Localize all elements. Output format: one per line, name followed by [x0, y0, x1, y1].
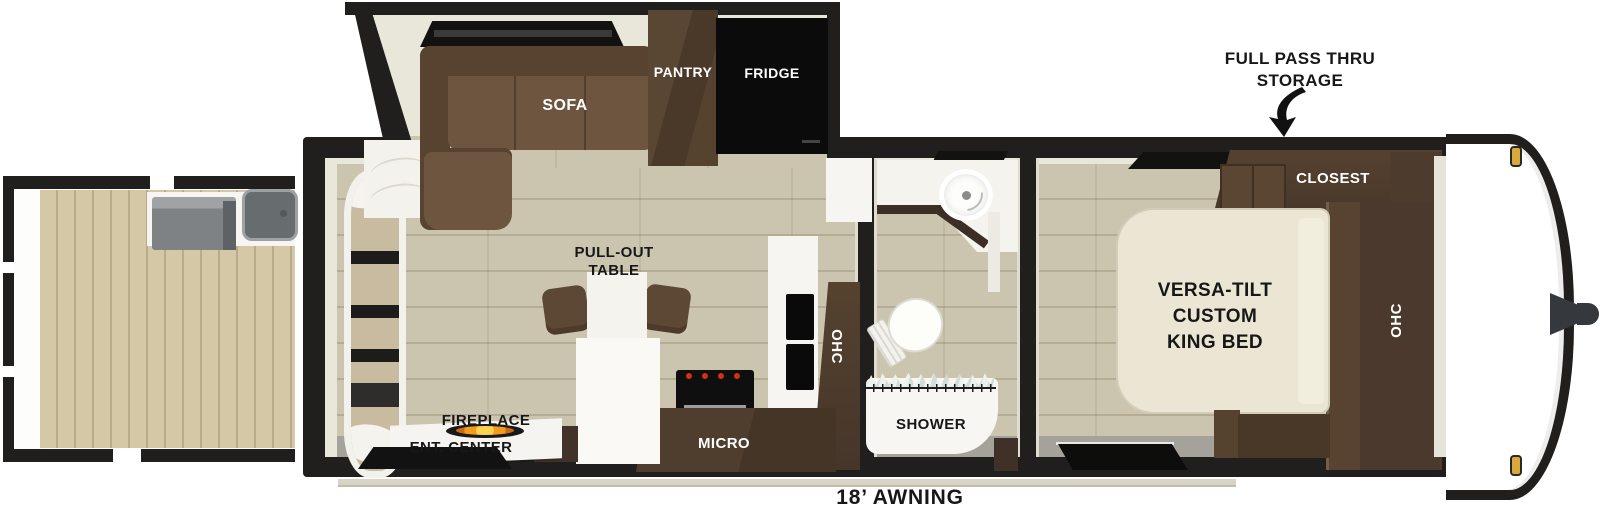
refrigerator [716, 18, 828, 154]
pull-out-table-upper [587, 272, 647, 340]
grill-side-shade [223, 201, 236, 250]
bedroom-ohc-label: OHC [1388, 303, 1405, 338]
bathroom-sink-divider [942, 170, 990, 218]
sofa-back-top [420, 46, 654, 80]
kitchen-sink-basin-1 [786, 294, 814, 340]
vanity-edge-horizontal [877, 205, 941, 214]
storage-arrow-icon [1258, 86, 1322, 138]
shower-rod [864, 387, 996, 389]
pull-out-table-lower [576, 338, 660, 464]
marker-light-top [1512, 148, 1520, 165]
bed-label-line3: KING BED [1100, 333, 1330, 352]
awning-label: 18’ AWNING [770, 487, 1030, 508]
slideout-window [420, 21, 624, 47]
deck-railing-gap-top [150, 176, 174, 189]
rear-door-bar-1 [351, 251, 399, 264]
shower-label: SHOWER [861, 417, 1001, 432]
sofa-chaise [424, 148, 512, 230]
kitchen-ohc-label-box: OHC [818, 306, 854, 386]
rear-door-bar-3 [351, 349, 399, 362]
slideout-frame-right [827, 2, 840, 158]
range-knob-4 [734, 373, 740, 379]
outdoor-sink [242, 189, 298, 241]
range-knob-2 [702, 373, 708, 379]
range-knob-3 [718, 373, 724, 379]
marker-light-bottom [1512, 457, 1520, 474]
hitch-bar [1577, 303, 1599, 325]
bed-label-line1: VERSA-TILT [1100, 281, 1330, 300]
kitchen-sink-basin-2 [786, 344, 814, 390]
bedroom-ohc-label-box: OHC [1376, 282, 1416, 358]
foot-cabinet-long [1238, 414, 1330, 458]
table-label-line1: PULL-OUT [552, 245, 676, 260]
slideout-window-stripe [434, 30, 612, 37]
dining-chair-left [541, 284, 591, 336]
deck-railing-gap-left-2 [3, 366, 14, 377]
closet-label: CLOSEST [1268, 171, 1398, 186]
rv-floorplan: SOFA PANTRY FRIDGE OHC MICRO PULL-OUT TA… [0, 0, 1600, 510]
bedroom-window-bottom [1054, 444, 1188, 470]
range-knob-1 [686, 373, 692, 379]
storage-annotation-line1: FULL PASS THRU [1170, 50, 1430, 67]
fridge-handle [802, 140, 820, 143]
linen-cabinet [994, 438, 1018, 471]
deck-railing-gap-left-1 [3, 262, 14, 273]
range-handle [684, 405, 746, 408]
sofa-label: SOFA [505, 98, 625, 114]
bathroom-sink [939, 169, 993, 221]
corner-counter [826, 158, 872, 222]
outdoor-sink-drain [280, 210, 287, 217]
pantry-cabinet [648, 10, 718, 166]
rear-door-panel [351, 383, 399, 407]
kitchen-ohc-label: OHC [828, 329, 845, 364]
awning-strip [338, 479, 1236, 487]
table-label-line2: TABLE [552, 263, 676, 278]
foot-cabinet-small [1214, 410, 1240, 458]
wall-bath-bedroom [1020, 158, 1036, 457]
dining-chair-right [641, 283, 692, 335]
ent-center-label: ENT. CENTER [395, 440, 527, 455]
bed-label-line2: CUSTOM [1100, 307, 1330, 326]
fridge-label: FRIDGE [716, 66, 828, 80]
rear-door-bar-2 [351, 305, 399, 318]
micro-label: MICRO [664, 436, 784, 451]
closet-door-1 [1220, 164, 1254, 210]
bathroom-wall-jog [988, 212, 1000, 292]
range-cooktop [676, 370, 754, 412]
outdoor-grill [152, 197, 236, 250]
deck-railing-gap-bottom [113, 449, 141, 462]
fireplace-label: FIREPLACE [416, 413, 556, 428]
